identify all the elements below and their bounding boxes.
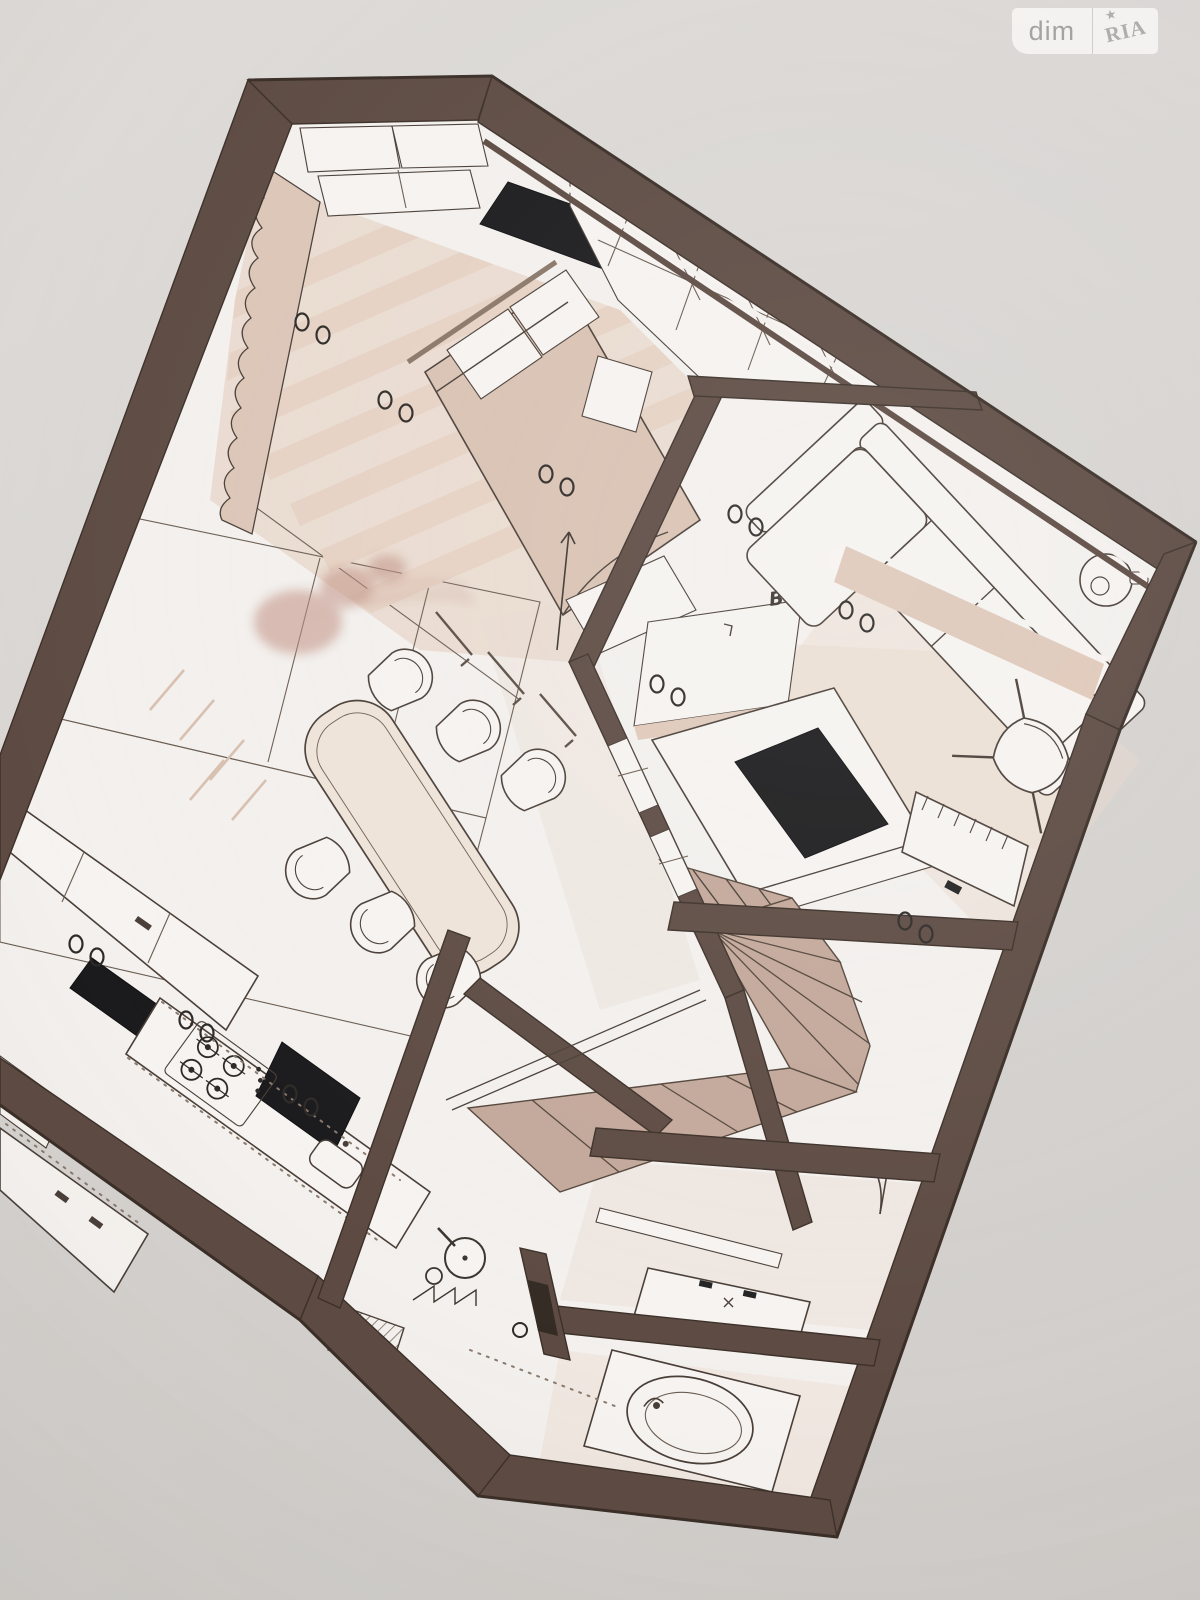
watermark-badge: dim ★ RIA: [1012, 8, 1158, 54]
floor-plan-drawing: B: [0, 0, 1200, 1600]
watermark-dim: dim: [1012, 8, 1092, 54]
watermark-ria-box: ★ RIA: [1092, 8, 1158, 54]
photo-of-floor-plan: B: [0, 0, 1200, 1600]
